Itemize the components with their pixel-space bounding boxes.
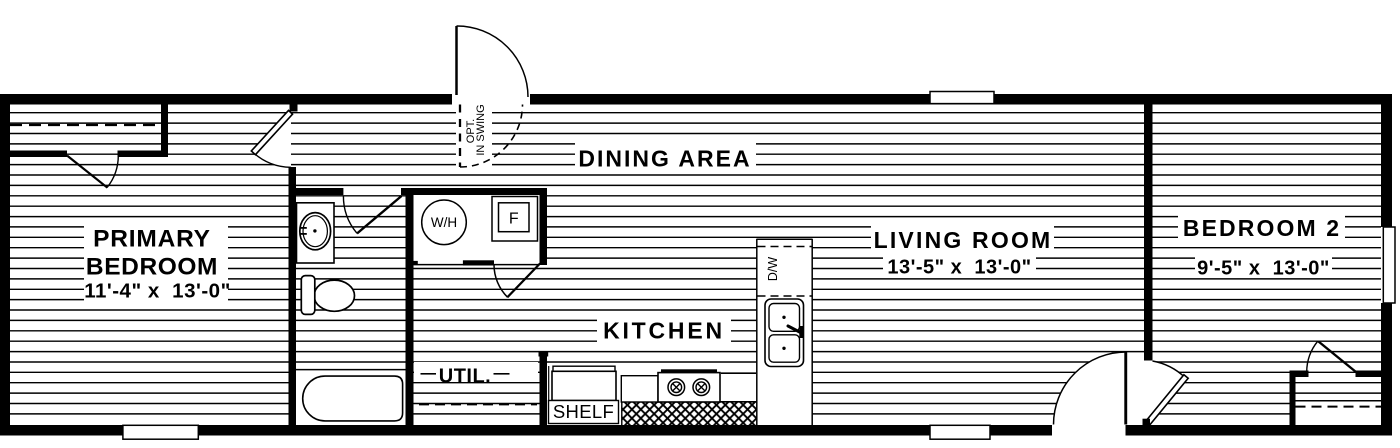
- svg-text:BEDROOM: BEDROOM: [86, 254, 218, 281]
- svg-text:13'-5" x 13'-0": 13'-5" x 13'-0": [887, 257, 1031, 279]
- svg-text:SHELF: SHELF: [553, 401, 614, 422]
- svg-text:IN SWING: IN SWING: [475, 104, 487, 155]
- svg-text:DINING AREA: DINING AREA: [578, 145, 751, 171]
- svg-text:W/H: W/H: [431, 215, 457, 230]
- svg-text:LIVING ROOM: LIVING ROOM: [874, 227, 1053, 253]
- svg-text:9'-5" x 13'-0": 9'-5" x 13'-0": [1197, 257, 1330, 279]
- svg-text:UTIL.: UTIL.: [439, 366, 492, 388]
- svg-text:D/W: D/W: [766, 257, 780, 282]
- svg-text:11'-4" x 13'-0": 11'-4" x 13'-0": [84, 280, 231, 303]
- svg-text:F: F: [509, 211, 519, 228]
- svg-text:BEDROOM 2: BEDROOM 2: [1183, 215, 1341, 241]
- svg-text:PRIMARY: PRIMARY: [93, 226, 211, 253]
- svg-text:KITCHEN: KITCHEN: [603, 318, 725, 344]
